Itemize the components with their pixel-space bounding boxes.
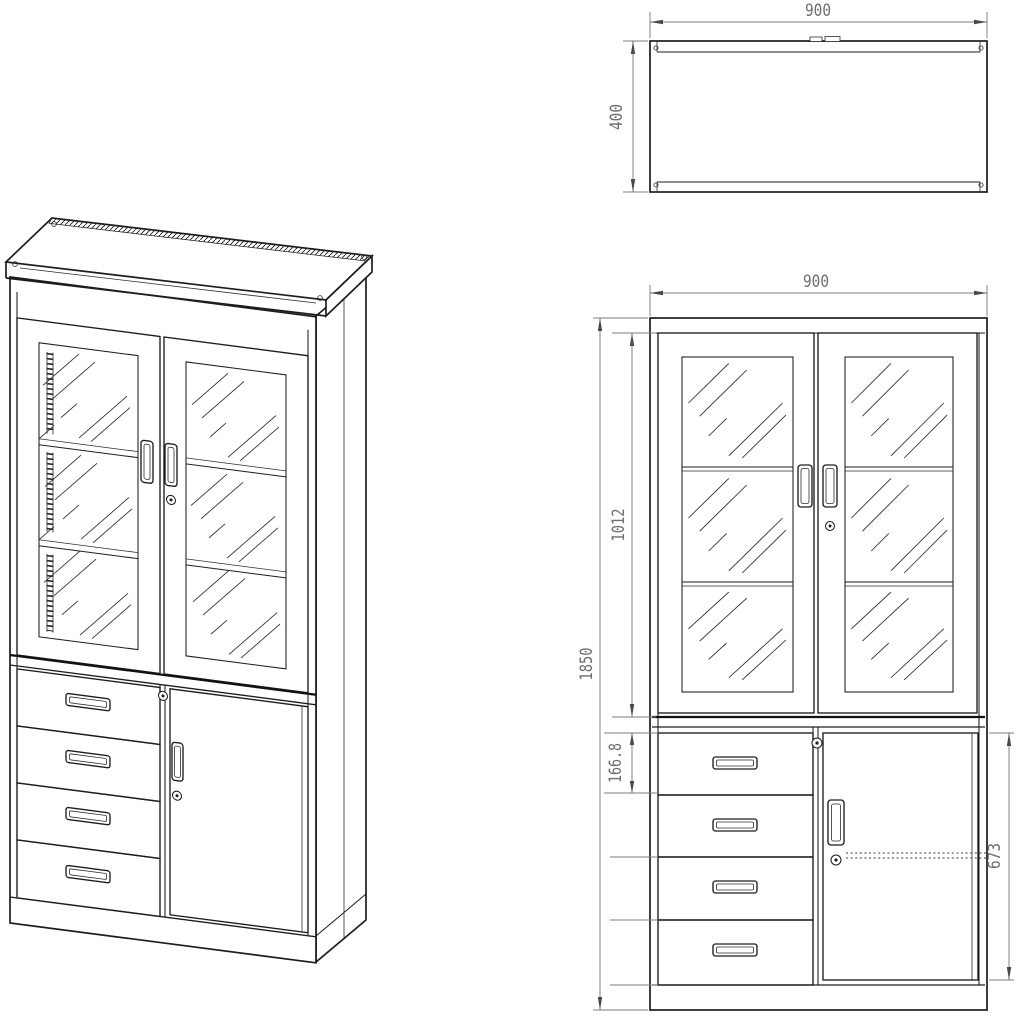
front-right-door-handle: [823, 465, 837, 507]
cabinet-technical-drawing: 900 400: [0, 0, 1019, 1020]
top-view-outline: [650, 41, 987, 192]
top-view: 900 400: [607, 1, 987, 192]
dim-label-drawer-height: 166.8: [606, 743, 626, 783]
iso-front-face: [10, 277, 316, 963]
top-view-handle-tops: [810, 37, 840, 42]
dimension-lower-door-height: 673: [985, 733, 1011, 980]
dim-label-top-width: 900: [805, 1, 831, 21]
dimension-front-width: 900: [650, 272, 987, 316]
dim-label-total-height: 1850: [577, 648, 597, 681]
iso-left-door-handle: [141, 440, 153, 484]
iso-lower-door-handle: [172, 742, 183, 781]
dimension-top-width: 900: [650, 1, 987, 38]
isometric-view: [6, 218, 372, 963]
dimension-top-depth: 400: [607, 41, 648, 192]
drawing-sheet: 900 400: [0, 0, 1019, 1020]
dimension-drawer-height: 166.8: [606, 733, 634, 793]
iso-right-side-panel: [316, 274, 366, 962]
front-left-door-handle: [798, 465, 812, 507]
dim-label-glass-section-height: 1012: [609, 509, 629, 542]
dim-label-lower-door-height: 673: [985, 843, 1005, 869]
dim-label-top-depth: 400: [607, 104, 627, 130]
dimension-total-height: 1850: [577, 318, 602, 1010]
dim-label-front-width: 900: [803, 272, 829, 292]
front-view: 900 1850 1012 166.8 673: [577, 272, 1014, 1010]
iso-right-door-handle: [165, 443, 177, 487]
dimension-glass-section-height: 1012: [609, 333, 634, 717]
front-lower-door-handle: [828, 800, 844, 845]
